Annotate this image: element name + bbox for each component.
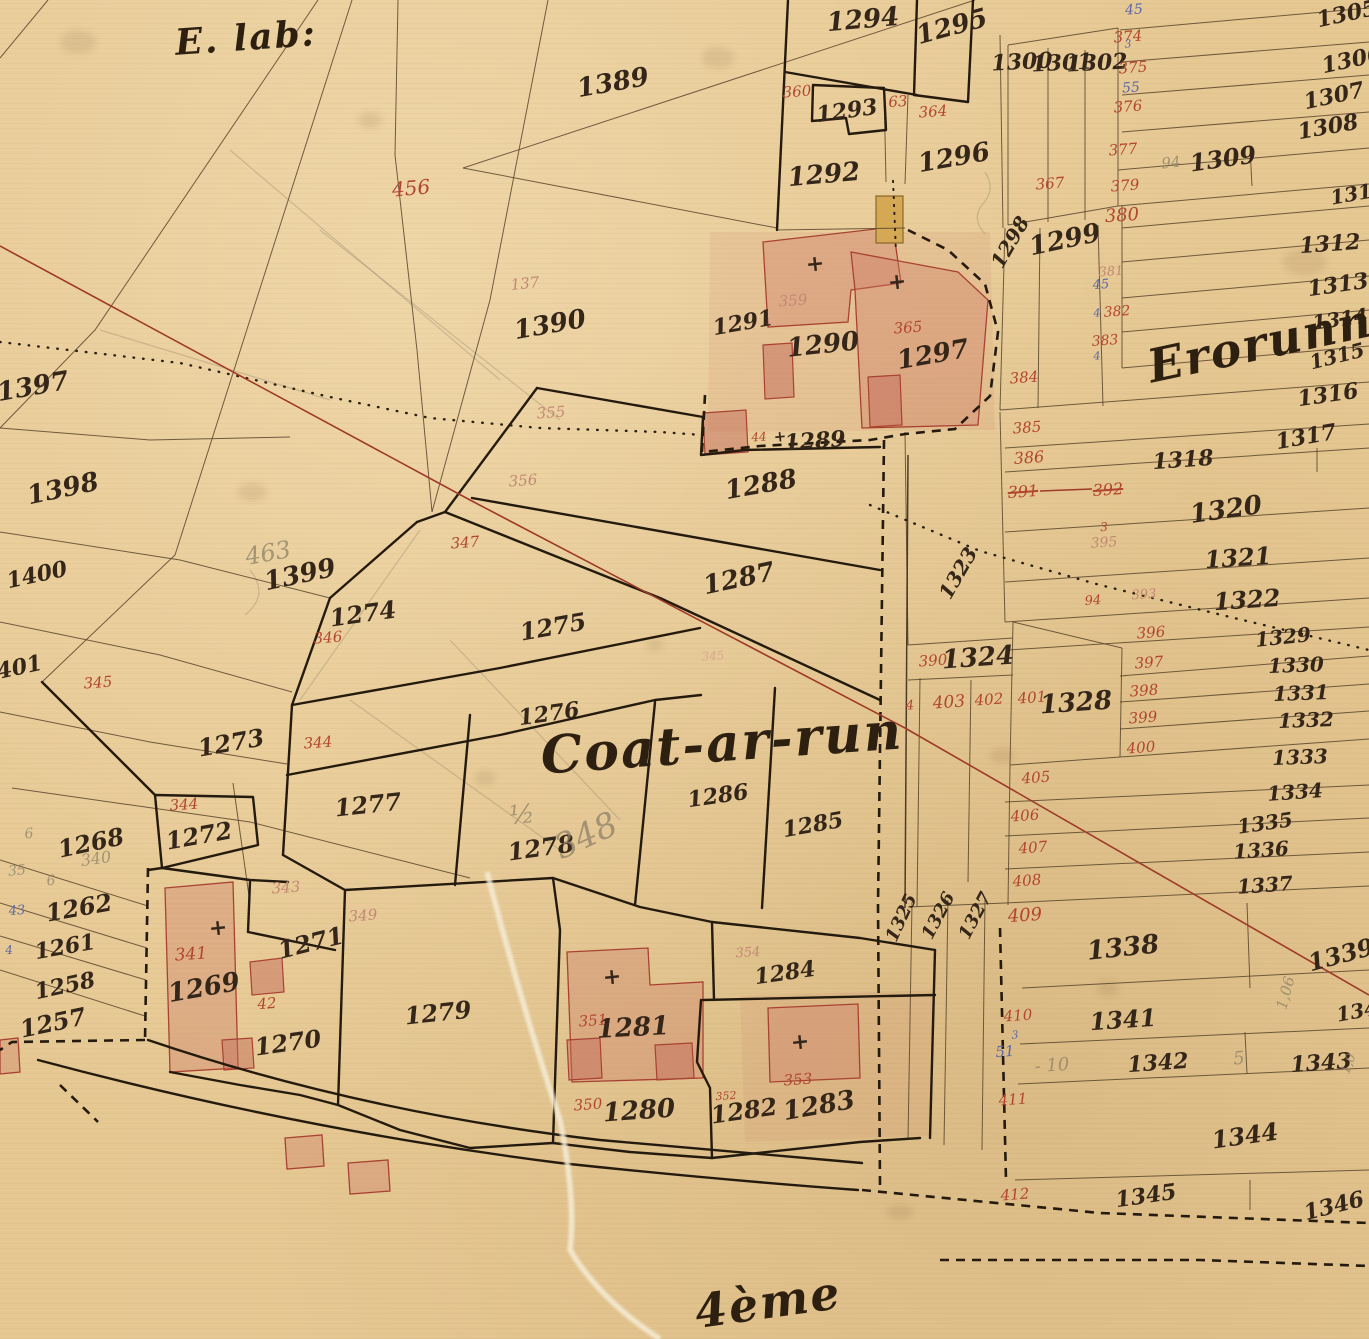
parcel-label: 367 xyxy=(1035,176,1065,193)
parcel-label: + xyxy=(602,965,623,989)
parcel-label: 1344 xyxy=(1210,1119,1279,1152)
parcel-label: 408 xyxy=(1012,873,1042,890)
parcel-label: 390 xyxy=(918,653,948,670)
parcel-label: 1328 xyxy=(1039,688,1113,719)
parcel-label: 383 xyxy=(1091,333,1119,349)
parcel-label: 43 xyxy=(8,904,25,918)
parcel-label: 1333 xyxy=(1272,746,1328,768)
parcel-label: - 10 xyxy=(1034,1056,1070,1076)
parcel-label: 345 xyxy=(701,649,725,663)
parcel-label: 391 xyxy=(1007,483,1039,501)
parcel-label: 1295 xyxy=(914,5,991,49)
parcel-label: 360 xyxy=(782,84,812,101)
parcel-label: + xyxy=(790,1030,811,1054)
parcel-label: 1308 xyxy=(1296,111,1360,143)
parcel-label: 1398 xyxy=(25,469,101,509)
parcel-label: 1297 xyxy=(895,336,971,374)
parcel-label: 42 xyxy=(257,996,277,1012)
parcel-label: 1330 xyxy=(1268,654,1324,676)
parcel-label: 1397 xyxy=(0,368,71,406)
parcel-label: 1323 xyxy=(935,544,980,602)
parcel-label: 405 xyxy=(1021,770,1051,787)
parcel-label: 1293 xyxy=(815,96,879,126)
parcel-label: 1321 xyxy=(1204,544,1272,573)
parcel-label: 1271 xyxy=(276,923,347,962)
parcel-label: 1309 xyxy=(1188,142,1257,175)
parcel-label: 398 xyxy=(1129,683,1159,700)
parcel-label: 1287 xyxy=(701,559,777,599)
parcel-label: 1334 xyxy=(1267,780,1324,804)
parcel-label: 4 xyxy=(1093,307,1101,318)
parcel-label: 1400 xyxy=(5,558,69,592)
parcel-label: 392 xyxy=(1092,481,1124,499)
parcel-label: 1341 xyxy=(1089,1006,1157,1035)
parcel-label: 352 xyxy=(715,1090,737,1102)
parcel-label: 3 xyxy=(1011,1029,1019,1040)
parcel-labels-layer: 1294129513001301130212931292129613051306… xyxy=(0,0,1369,1339)
parcel-label: 94 xyxy=(1161,155,1182,172)
parcel-label: 1289 xyxy=(784,428,847,454)
parcel-label: 1294 xyxy=(826,4,900,36)
parcel-label: 1335 xyxy=(1236,809,1294,837)
parcel-label: 1329 xyxy=(1254,624,1311,650)
parcel-label: 1307 xyxy=(1302,79,1366,113)
parcel-label: 1275 xyxy=(518,609,588,644)
parcel-label: 346 xyxy=(313,630,343,647)
parcel-label: 399 xyxy=(1128,710,1158,727)
parcel-label: 1324 xyxy=(941,643,1015,674)
parcel-label: 63 xyxy=(888,94,908,110)
parcel-label: 412 xyxy=(1000,1187,1030,1204)
parcel-label: 1342 xyxy=(1127,1050,1190,1076)
corner-note: E. lab: xyxy=(174,15,318,61)
parcel-label: 377 xyxy=(1108,142,1138,159)
parcel-label: 55 xyxy=(1122,80,1141,95)
parcel-label: 403 xyxy=(932,693,966,712)
parcel-label: 1277 xyxy=(334,790,403,821)
parcel-label: 345 xyxy=(83,675,113,692)
parcel-label: 1291 xyxy=(711,307,775,339)
parcel-label: 35 xyxy=(7,863,26,879)
parcel-label: 354 xyxy=(735,946,761,961)
parcel-label: 45 xyxy=(1092,278,1109,292)
parcel-label: 396 xyxy=(1136,625,1166,642)
parcel-label: 6 xyxy=(24,827,34,842)
parcel-label: 400 xyxy=(1126,740,1156,757)
parcel-label: 1317 xyxy=(1274,421,1338,453)
parcel-label: 6 xyxy=(46,874,56,889)
parcel-label: 359 xyxy=(778,293,808,310)
parcel-label: 393 xyxy=(1131,588,1157,603)
parcel-label: 379 xyxy=(1110,178,1140,195)
parcel-label: 341 xyxy=(174,945,208,964)
parcel-label: + xyxy=(208,916,229,940)
parcel-label: 1306 xyxy=(1320,43,1369,77)
parcel-label: 1339 xyxy=(1306,935,1369,975)
parcel-label: 355 xyxy=(536,405,566,422)
parcel-label: 1389 xyxy=(575,64,651,102)
parcel-label: 356 xyxy=(508,473,538,490)
parcel-label: 401 xyxy=(1017,690,1047,707)
parcel-label: 1325 xyxy=(883,891,920,944)
parcel-label: 1322 xyxy=(1213,586,1281,615)
parcel-label: 137 xyxy=(510,275,540,293)
parcel-label: 94 xyxy=(1084,594,1101,608)
parcel-label: 340 xyxy=(80,849,112,869)
parcel-label: 4 xyxy=(5,944,13,957)
parcel-label: 1286 xyxy=(686,781,750,811)
parcel-label: 397 xyxy=(1134,655,1164,672)
parcel-label: + xyxy=(887,270,908,294)
parcel-label: 1305 xyxy=(1315,0,1369,31)
parcel-label: 1296 xyxy=(916,139,992,177)
parcel-label: 344 xyxy=(169,797,199,814)
parcel-label: 463 xyxy=(243,537,292,569)
parcel-label: 1327 xyxy=(956,890,995,943)
parcel-label: 5 xyxy=(1232,1049,1245,1068)
parcel-label: 385 xyxy=(1012,420,1042,437)
parcel-label: 1269 xyxy=(166,969,242,1007)
parcel-label: 1312 xyxy=(1299,231,1362,257)
parcel-label: 1272 xyxy=(164,818,234,853)
parcel-label: 45 xyxy=(1125,2,1144,17)
parcel-label: 44 xyxy=(751,430,767,443)
parcel-label: 382 xyxy=(1103,304,1131,320)
parcel-label: 1290 xyxy=(786,328,861,361)
parcel-label: 351 xyxy=(578,1013,608,1030)
parcel-label: 348 xyxy=(549,807,622,865)
parcel-label: 1318 xyxy=(1152,447,1215,473)
parcel-label: 353 xyxy=(783,1072,813,1089)
parcel-label: 4 xyxy=(905,699,914,713)
parcel-label: 456 xyxy=(391,176,431,199)
parcel-label: 1320 xyxy=(1188,492,1263,528)
parcel-label: 1337 xyxy=(1237,873,1294,897)
parcel-label: 1311 xyxy=(1329,178,1369,207)
parcel-label: 344 xyxy=(303,735,333,752)
parcel-label: + xyxy=(805,252,826,276)
parcel-label: 3 xyxy=(1124,38,1132,49)
parcel-label: 1298 xyxy=(987,213,1032,271)
parcel-label: ½ xyxy=(508,801,535,829)
parcel-label: 3 xyxy=(1100,521,1108,534)
parcel-label: 349 xyxy=(348,908,378,925)
parcel-label: 1280 xyxy=(602,1096,676,1127)
parcel-label: 365 xyxy=(893,320,923,337)
parcel-label: 364 xyxy=(918,104,948,121)
parcel-label: 407 xyxy=(1018,840,1048,857)
parcel-label: 1292 xyxy=(787,159,861,191)
parcel-label: 406 xyxy=(1010,808,1040,825)
parcel-label: 1338 xyxy=(1086,931,1161,964)
parcel-label: 1345 xyxy=(1114,1181,1178,1211)
parcel-label: 1285 xyxy=(781,809,845,841)
parcel-label: 343 xyxy=(271,880,301,897)
parcel-label: 1332 xyxy=(1278,709,1334,731)
parcel-label: 1270 xyxy=(253,1026,322,1059)
parcel-label: 384 xyxy=(1009,370,1039,387)
parcel-label: 410 xyxy=(1003,1008,1033,1025)
parcel-label: 1346 xyxy=(1302,1188,1367,1224)
parcel-label: 409 xyxy=(1007,906,1043,926)
parcel-label: 386 xyxy=(1013,449,1045,467)
parcel-label: 1326 xyxy=(919,890,958,943)
parcel-label: 1261 xyxy=(33,931,97,963)
parcel-label: 1,06 xyxy=(1274,975,1297,1011)
parcel-label: 1336 xyxy=(1233,838,1290,862)
parcel-label: 395 xyxy=(1090,535,1118,551)
parcel-label: 1273 xyxy=(196,725,266,760)
parcel-label: 1257 xyxy=(18,1004,88,1041)
parcel-label: 375 xyxy=(1118,60,1148,77)
parcel-label: 1279 xyxy=(404,998,473,1029)
parcel-label: 347 xyxy=(450,535,480,552)
cadastral-map: 1294129513001301130212931292129613051306… xyxy=(0,0,1369,1339)
parcel-label: 1274 xyxy=(328,597,397,630)
parcel-label: 1284 xyxy=(753,958,817,988)
parcel-label: 1401 xyxy=(0,652,44,686)
parcel-label: 411 xyxy=(998,1092,1028,1109)
parcel-label: 402 xyxy=(974,692,1004,709)
parcel-label: 1316 xyxy=(1296,380,1360,410)
parcel-label: 1288 xyxy=(723,466,799,504)
parcel-label: 1390 xyxy=(512,306,588,344)
parcel-label: 1340 xyxy=(1335,995,1369,1024)
parcel-label: 380 xyxy=(1104,206,1140,226)
parcel-label: 1331 xyxy=(1273,682,1329,704)
parcel-label: 4 xyxy=(1093,350,1101,361)
parcel-label: 350 xyxy=(573,1097,603,1114)
parcel-label: 51 xyxy=(995,1044,1015,1060)
parcel-label: 376 xyxy=(1113,99,1143,116)
parcel-label: 1299 xyxy=(1027,220,1103,260)
parcel-label: 1283 xyxy=(781,1087,857,1125)
parcel-label: 1258 xyxy=(33,969,97,1003)
parcel-label: 1262 xyxy=(44,890,114,925)
